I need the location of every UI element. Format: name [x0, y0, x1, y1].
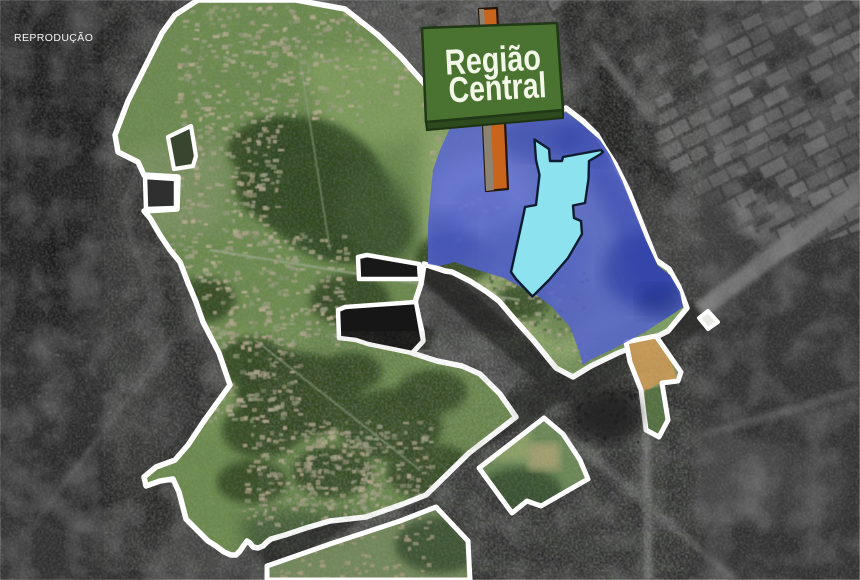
svg-text:REPRODUÇÃO: REPRODUÇÃO: [14, 31, 93, 44]
svg-text:Central: Central: [447, 64, 547, 110]
